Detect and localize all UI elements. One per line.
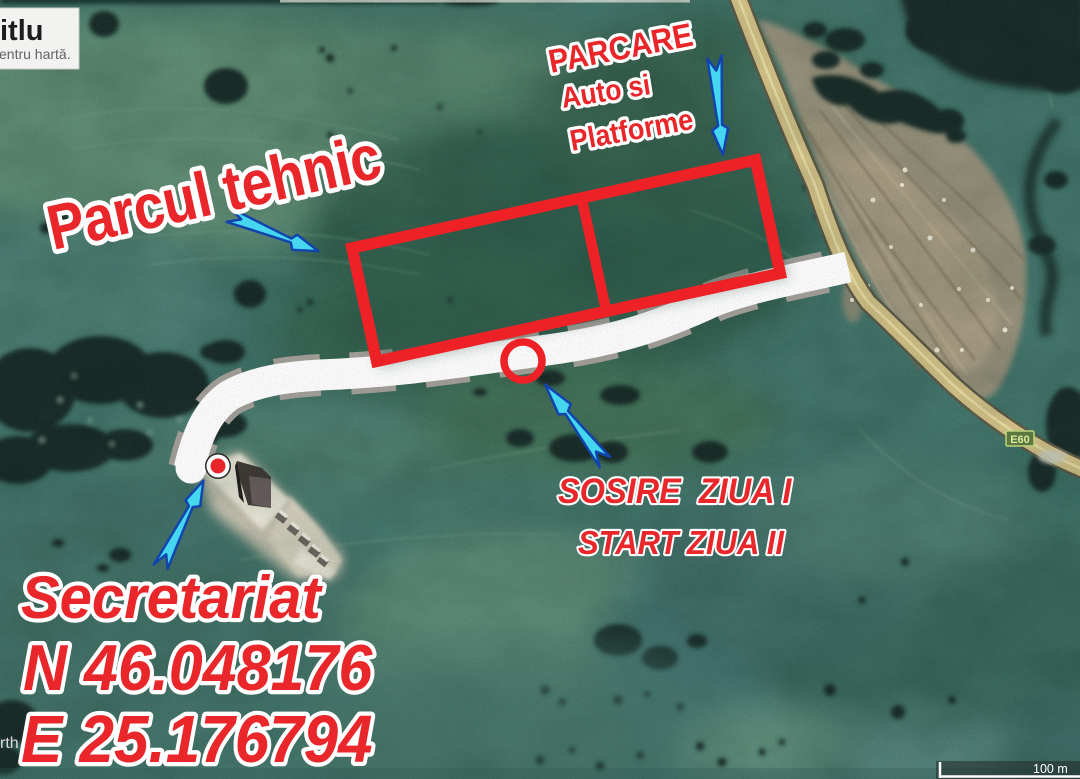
svg-text:Secretariat: Secretariat bbox=[21, 563, 323, 631]
svg-text:START ZIUA II: START ZIUA II bbox=[578, 524, 785, 561]
svg-text:SOSIRE ZIUA I: SOSIRE ZIUA I bbox=[558, 472, 792, 511]
svg-text:100 m: 100 m bbox=[1033, 762, 1068, 776]
svg-text:E60: E60 bbox=[1010, 434, 1030, 446]
svg-text:rth: rth bbox=[0, 735, 19, 752]
svg-text:N 46.048176: N 46.048176 bbox=[23, 632, 373, 704]
svg-text:itlu: itlu bbox=[0, 15, 44, 47]
svg-text:E 25.176794: E 25.176794 bbox=[21, 702, 373, 776]
svg-text:entru hartă.: entru hartă. bbox=[0, 46, 71, 62]
